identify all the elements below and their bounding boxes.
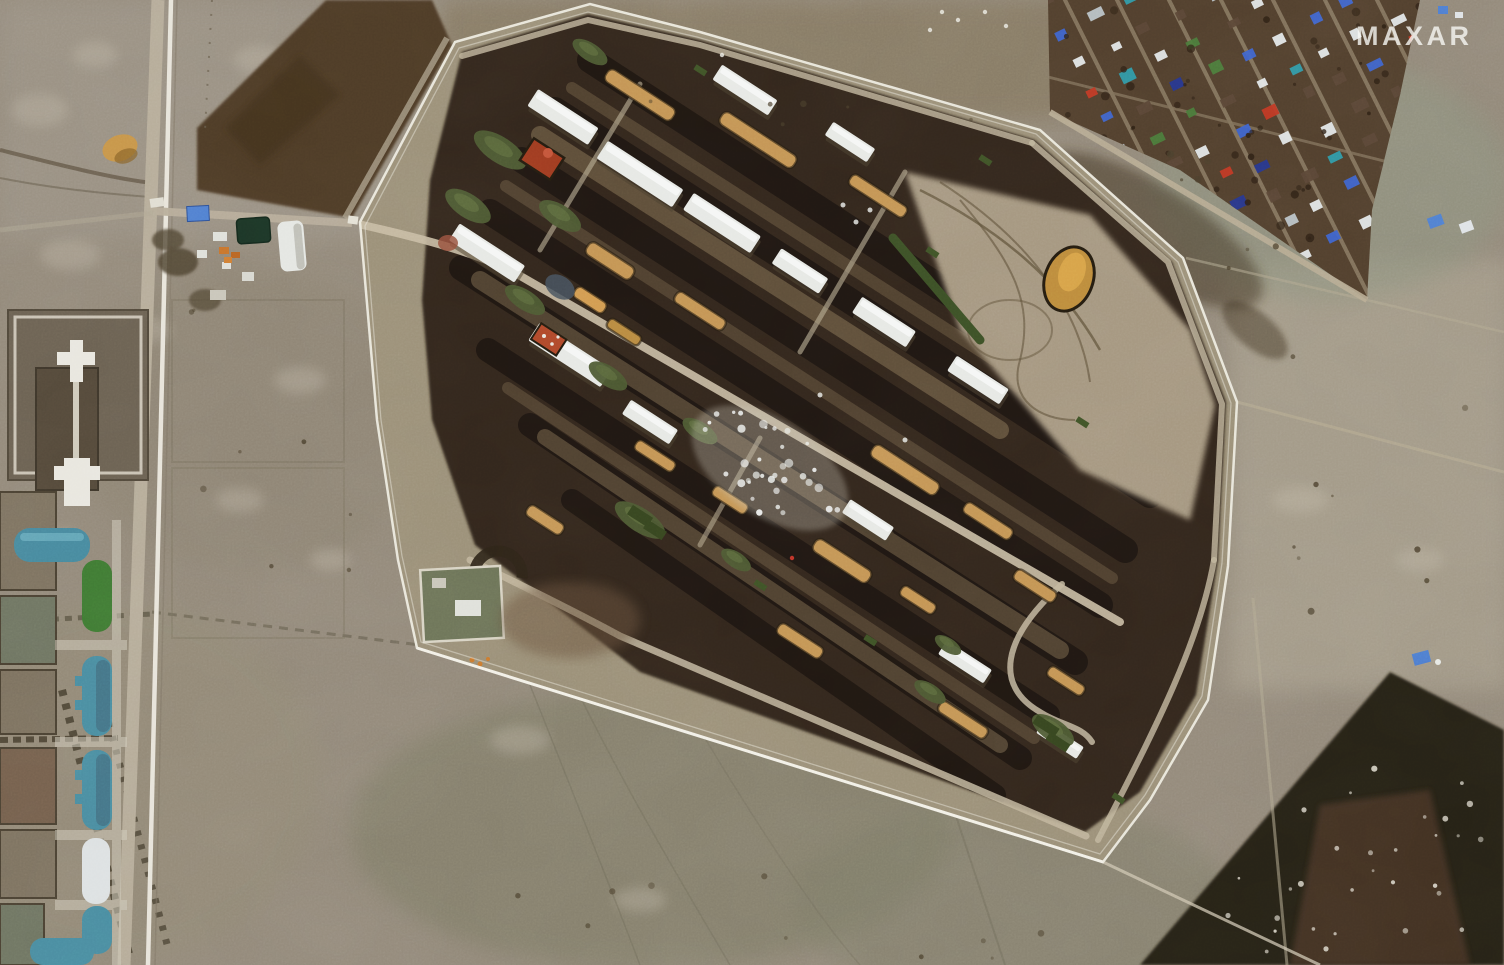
maxar-watermark: MAXAR bbox=[1356, 21, 1473, 51]
satellite-image: MAXAR bbox=[0, 0, 1504, 965]
grain-overlay bbox=[0, 0, 1504, 965]
